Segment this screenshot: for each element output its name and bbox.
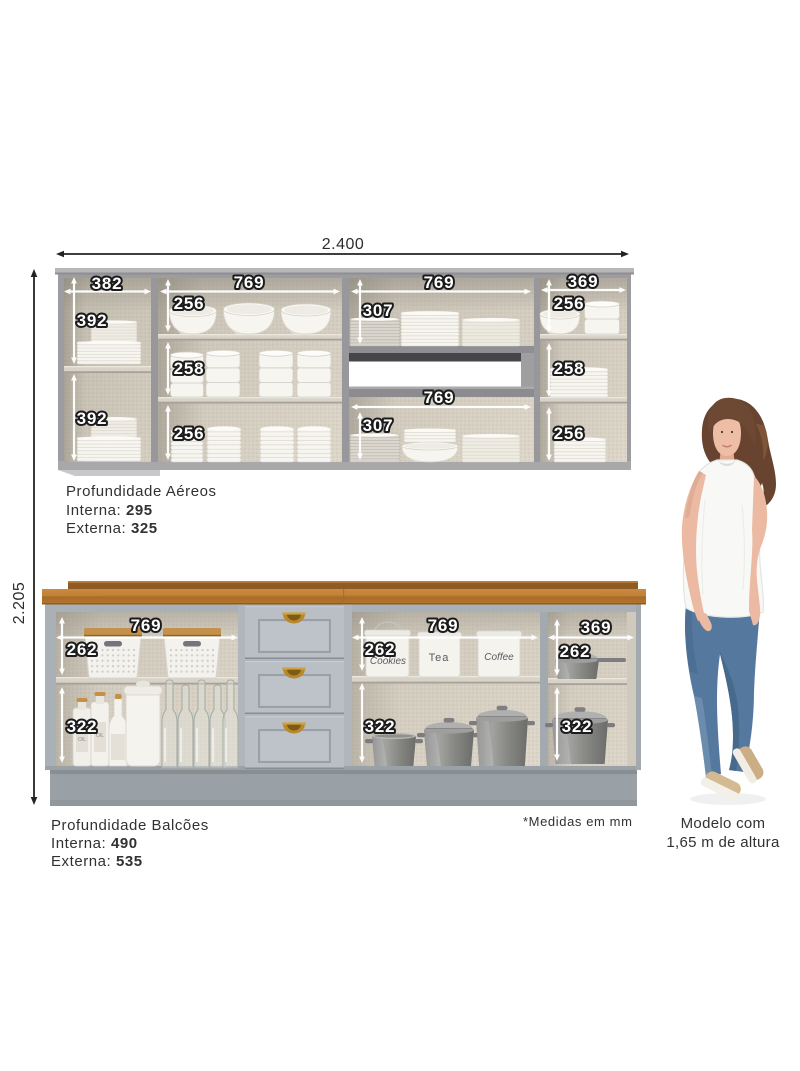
svg-text:Interna: 490: Interna: 490 [51,835,138,852]
svg-text:369: 369 [568,272,599,291]
svg-text:Profundidade Balcões: Profundidade Balcões [51,817,209,834]
svg-text:Profundidade Aéreos: Profundidade Aéreos [66,483,217,500]
svg-text:256: 256 [174,294,205,313]
svg-text:322: 322 [365,717,396,736]
svg-text:256: 256 [554,294,585,313]
svg-text:769: 769 [428,616,459,635]
svg-text:322: 322 [67,717,98,736]
svg-text:Externa: 325: Externa: 325 [66,520,158,537]
svg-text:Coffee: Coffee [484,652,514,663]
svg-text:769: 769 [234,273,265,292]
svg-text:322: 322 [562,717,593,736]
svg-text:769: 769 [424,273,455,292]
svg-text:258: 258 [174,359,205,378]
svg-text:OIL: OIL [78,737,86,743]
svg-text:382: 382 [92,274,123,293]
svg-text:256: 256 [554,424,585,443]
svg-text:258: 258 [554,359,585,378]
svg-text:769: 769 [424,388,455,407]
svg-text:262: 262 [365,640,396,659]
svg-text:256: 256 [174,424,205,443]
svg-text:Modelo com: Modelo com [681,815,766,832]
svg-text:262: 262 [560,642,591,661]
svg-text:2.205: 2.205 [11,582,28,625]
svg-text:Interna: 295: Interna: 295 [66,502,153,519]
svg-text:*Medidas em mm: *Medidas em mm [523,814,633,829]
svg-text:1,65 m de altura: 1,65 m de altura [666,834,780,851]
svg-text:307: 307 [363,416,394,435]
svg-text:392: 392 [77,409,108,428]
svg-text:307: 307 [363,301,394,320]
svg-text:769: 769 [131,616,162,635]
svg-text:369: 369 [581,618,612,637]
svg-text:Tea: Tea [429,652,450,664]
svg-text:262: 262 [67,640,98,659]
svg-text:Externa: 535: Externa: 535 [51,853,143,870]
svg-text:392: 392 [77,311,108,330]
svg-text:2.400: 2.400 [322,236,365,253]
